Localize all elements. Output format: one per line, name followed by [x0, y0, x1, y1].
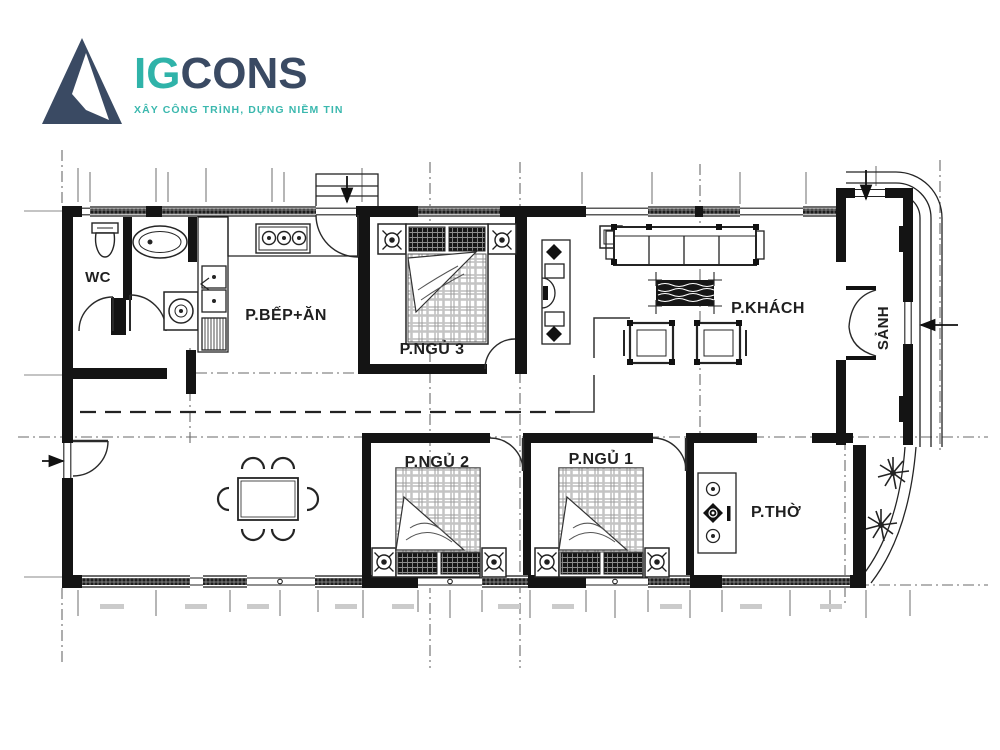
- room-label-bedroom2: P.NGỦ 2: [405, 452, 470, 471]
- wall-left: [62, 206, 73, 588]
- furniture: [92, 217, 764, 577]
- bathtub: [133, 226, 187, 258]
- wall-bedroom2-top: [362, 433, 490, 443]
- door-back: [316, 215, 358, 257]
- chair: [272, 529, 294, 540]
- pillow: [409, 227, 445, 251]
- wall-dining-divider: [362, 433, 371, 588]
- wall-bedroom3-south: [358, 364, 487, 374]
- blurred-dimension-numbers: [100, 604, 842, 609]
- wall-worship-top-right: [812, 433, 853, 443]
- plant-icon: [866, 509, 897, 541]
- washing-machine: [164, 292, 198, 330]
- wall-bedroom3-left: [358, 206, 370, 374]
- wall-worship-right: [853, 445, 866, 588]
- dining-set: [218, 458, 318, 540]
- page: IGCONS XÂY CÔNG TRÌNH, DỰNG NIỀM TIN: [0, 0, 1000, 750]
- wall-wc: [123, 210, 132, 300]
- pillow: [561, 553, 600, 574]
- door-bedroom2: [490, 438, 523, 471]
- lamp-icon: [485, 553, 504, 572]
- toilet: [92, 223, 118, 257]
- lamp-icon: [375, 553, 394, 572]
- pillow: [604, 553, 643, 574]
- room-label-living: P.KHÁCH: [731, 298, 805, 317]
- sofa: [606, 224, 764, 265]
- lamp-icon: [493, 231, 512, 250]
- wall-worship-top-left: [686, 433, 757, 443]
- armchair: [694, 320, 746, 365]
- pillow: [441, 553, 480, 574]
- room-label-kitchen: P.BẾP+ĂN: [245, 305, 327, 324]
- pillow: [398, 553, 437, 574]
- door-side-entry: [73, 441, 108, 476]
- door-bath: [130, 295, 166, 331]
- armchair: [624, 320, 675, 365]
- coffee-table: [648, 272, 722, 314]
- lamp-icon: [538, 553, 557, 572]
- chair: [242, 529, 264, 540]
- room-label-wc: WC: [85, 269, 111, 286]
- chair: [307, 488, 318, 510]
- floor-plan-drawing: WC P.BẾP+ĂN P.NGỦ 3 P.KHÁCH SẢNH P.NGỦ 2…: [0, 0, 1000, 750]
- chair: [272, 458, 294, 469]
- pillow: [449, 227, 485, 251]
- altar-cabinet: [698, 473, 736, 553]
- double-door-hall: [849, 290, 876, 356]
- wall-kitchen-south: [62, 368, 167, 379]
- room-label-hall: SẢNH: [875, 306, 892, 350]
- door-wc: [79, 297, 113, 331]
- wall-bedroom3-right: [515, 206, 527, 374]
- chair: [242, 458, 264, 469]
- wall-hall-left-upper: [836, 188, 846, 262]
- bed-bedroom1: [535, 468, 669, 577]
- door-bedroom1: [653, 438, 686, 471]
- lamp-icon: [648, 553, 667, 572]
- wall-hall-left-lower: [836, 360, 846, 445]
- wall-bath: [188, 210, 197, 262]
- room-label-worship: P.THỜ: [751, 502, 801, 521]
- room-label-bedroom3: P.NGỦ 3: [400, 339, 465, 358]
- wall-bedroom1-top: [523, 433, 653, 443]
- lamp-icon: [383, 231, 402, 250]
- plant-icon: [878, 457, 909, 489]
- room-label-bedroom1: P.NGỦ 1: [569, 449, 634, 468]
- desk-unit: [542, 240, 570, 344]
- stove: [256, 224, 310, 253]
- bed-bedroom2: [372, 468, 506, 577]
- chair: [218, 488, 229, 510]
